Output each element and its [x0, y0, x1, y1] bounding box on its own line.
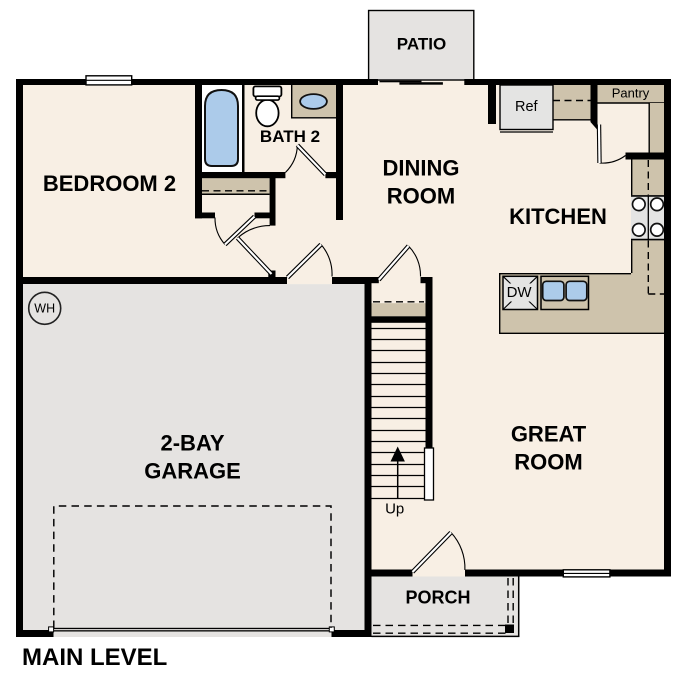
- svg-text:2-BAY: 2-BAY: [161, 431, 225, 456]
- svg-text:WH: WH: [34, 302, 55, 316]
- svg-text:GARAGE: GARAGE: [144, 459, 241, 484]
- svg-text:DW: DW: [507, 284, 533, 301]
- svg-text:Ref: Ref: [515, 99, 539, 115]
- svg-text:GREAT: GREAT: [511, 422, 587, 447]
- svg-text:Up: Up: [385, 501, 404, 518]
- svg-text:KITCHEN: KITCHEN: [509, 204, 607, 229]
- svg-text:PATIO: PATIO: [397, 35, 446, 54]
- svg-text:MAIN LEVEL: MAIN LEVEL: [22, 644, 167, 671]
- svg-text:PORCH: PORCH: [405, 588, 470, 608]
- svg-text:DINING: DINING: [383, 156, 460, 181]
- svg-text:Pantry: Pantry: [612, 86, 650, 101]
- svg-text:BEDROOM 2: BEDROOM 2: [43, 171, 176, 196]
- svg-text:ROOM: ROOM: [387, 184, 455, 209]
- svg-text:ROOM: ROOM: [514, 450, 582, 475]
- svg-text:BATH 2: BATH 2: [260, 127, 320, 146]
